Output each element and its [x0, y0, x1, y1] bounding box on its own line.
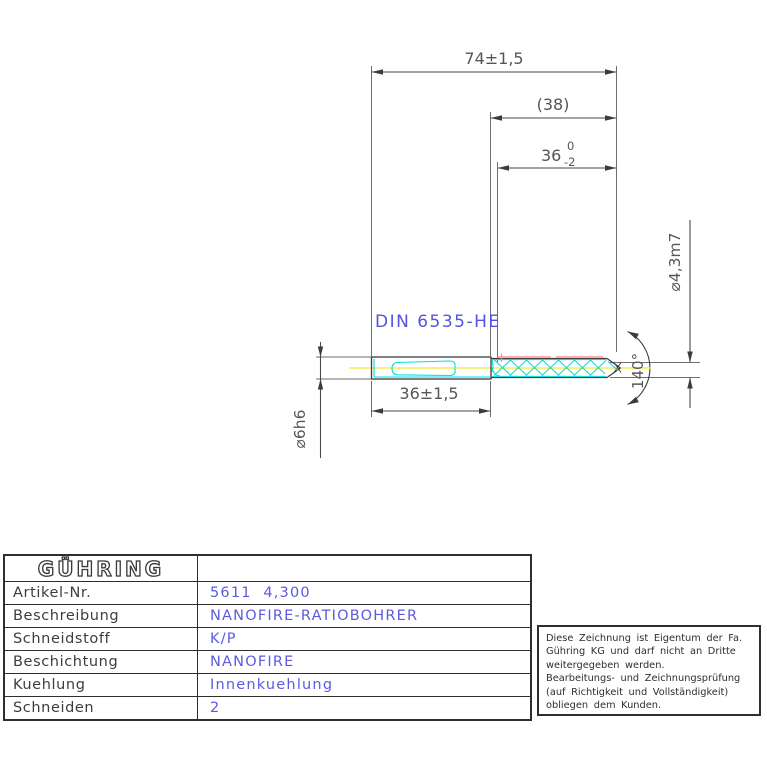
row-value-kuehlung: Innenkuehlung: [198, 674, 530, 696]
table-row: Beschichtung NANOFIRE: [5, 650, 530, 673]
row-value-schneidstoff: K/P: [198, 628, 530, 650]
dim-shank-diameter: ⌀6h6: [291, 410, 309, 449]
row-value-schneiden: 2: [198, 697, 530, 719]
dim-overall-length: 74±1,5: [464, 49, 523, 68]
row-value-beschreibung: NANOFIRE-RATIOBOHRER: [198, 605, 530, 627]
din-shank-label: DIN 6535-HE: [375, 312, 501, 332]
brand-cell: GÜHRING: [5, 556, 198, 581]
table-header-row: GÜHRING: [5, 556, 530, 581]
dimension-texts: 74±1,5 (38) 36 0 -2 36±1,5 ⌀4,3m7 ⌀6h6 1…: [291, 49, 684, 448]
dim-tip-diameter: ⌀4,3m7: [666, 233, 684, 292]
table-row: Schneiden 2: [5, 696, 530, 719]
table-row: Kuehlung Innenkuehlung: [5, 673, 530, 696]
drill-drawing-svg: 74±1,5 (38) 36 0 -2 36±1,5 ⌀4,3m7 ⌀6h6 1…: [0, 0, 767, 545]
guehring-logo: GÜHRING: [38, 557, 164, 581]
row-value-artikel-nr: 5611 4,300: [198, 582, 530, 604]
technical-drawing-page: 74±1,5 (38) 36 0 -2 36±1,5 ⌀4,3m7 ⌀6h6 1…: [0, 0, 767, 767]
table-row: Schneidstoff K/P: [5, 627, 530, 650]
header-empty-cell: [198, 556, 530, 581]
table-row: Beschreibung NANOFIRE-RATIOBOHRER: [5, 604, 530, 627]
table-row: Artikel-Nr. 5611 4,300: [5, 581, 530, 604]
row-label-beschreibung: Beschreibung: [5, 605, 198, 627]
row-label-schneiden: Schneiden: [5, 697, 198, 719]
ownership-note: Diese Zeichnung ist Eigentum der Fa. Güh…: [537, 625, 761, 716]
row-label-schneidstoff: Schneidstoff: [5, 628, 198, 650]
spec-table: GÜHRING Artikel-Nr. 5611 4,300 Beschreib…: [3, 554, 532, 721]
dim-point-angle: 140°: [629, 353, 647, 389]
dim-flute-length: 36: [541, 146, 561, 165]
row-value-beschichtung: NANOFIRE: [198, 651, 530, 673]
dim-flute-tol-upper: 0: [567, 139, 574, 153]
drawing-canvas: 74±1,5 (38) 36 0 -2 36±1,5 ⌀4,3m7 ⌀6h6 1…: [0, 0, 767, 549]
row-label-beschichtung: Beschichtung: [5, 651, 198, 673]
dim-flute-tol-lower: -2: [564, 155, 575, 169]
row-label-kuehlung: Kuehlung: [5, 674, 198, 696]
margin-highlight-lines: [497, 354, 603, 363]
dim-shank-length: 36±1,5: [399, 384, 458, 403]
dim-flute-ref: (38): [537, 95, 570, 114]
row-label-artikel-nr: Artikel-Nr.: [5, 582, 198, 604]
